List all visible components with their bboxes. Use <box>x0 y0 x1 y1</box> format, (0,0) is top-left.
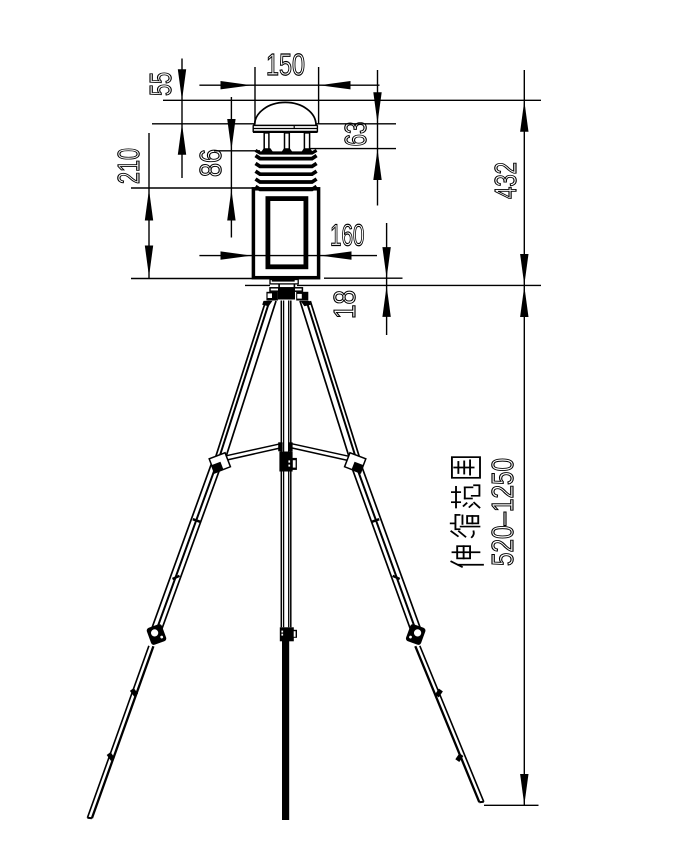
svg-text:160: 160 <box>330 218 365 253</box>
svg-text:432: 432 <box>488 162 523 199</box>
svg-text:86: 86 <box>193 149 228 177</box>
svg-text:520–1250: 520–1250 <box>485 458 520 566</box>
svg-text:150: 150 <box>266 47 305 82</box>
svg-text:63: 63 <box>338 122 373 147</box>
svg-text:210: 210 <box>111 148 146 184</box>
svg-text:18: 18 <box>327 290 362 319</box>
svg-text:55: 55 <box>143 72 178 96</box>
